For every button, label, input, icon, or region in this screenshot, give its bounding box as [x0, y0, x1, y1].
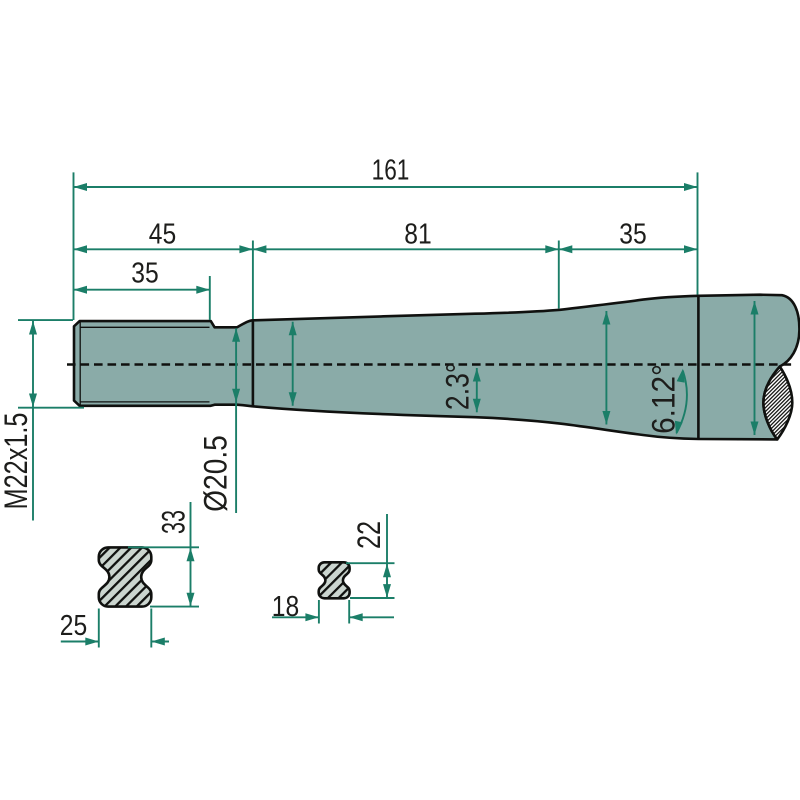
svg-text:Ø20.5: Ø20.5: [199, 435, 234, 512]
svg-text:35: 35: [619, 217, 646, 249]
svg-text:33: 33: [155, 510, 191, 534]
svg-text:22: 22: [352, 521, 388, 549]
svg-text:161: 161: [372, 153, 410, 186]
svg-text:45: 45: [149, 217, 176, 249]
svg-text:25: 25: [60, 609, 87, 641]
svg-text:2.3°: 2.3°: [440, 363, 476, 411]
svg-text:81: 81: [404, 217, 431, 249]
svg-text:18: 18: [272, 590, 299, 622]
svg-text:M22x1.5: M22x1.5: [0, 413, 35, 510]
svg-text:6.12°: 6.12°: [646, 364, 682, 434]
svg-text:35: 35: [131, 257, 158, 289]
